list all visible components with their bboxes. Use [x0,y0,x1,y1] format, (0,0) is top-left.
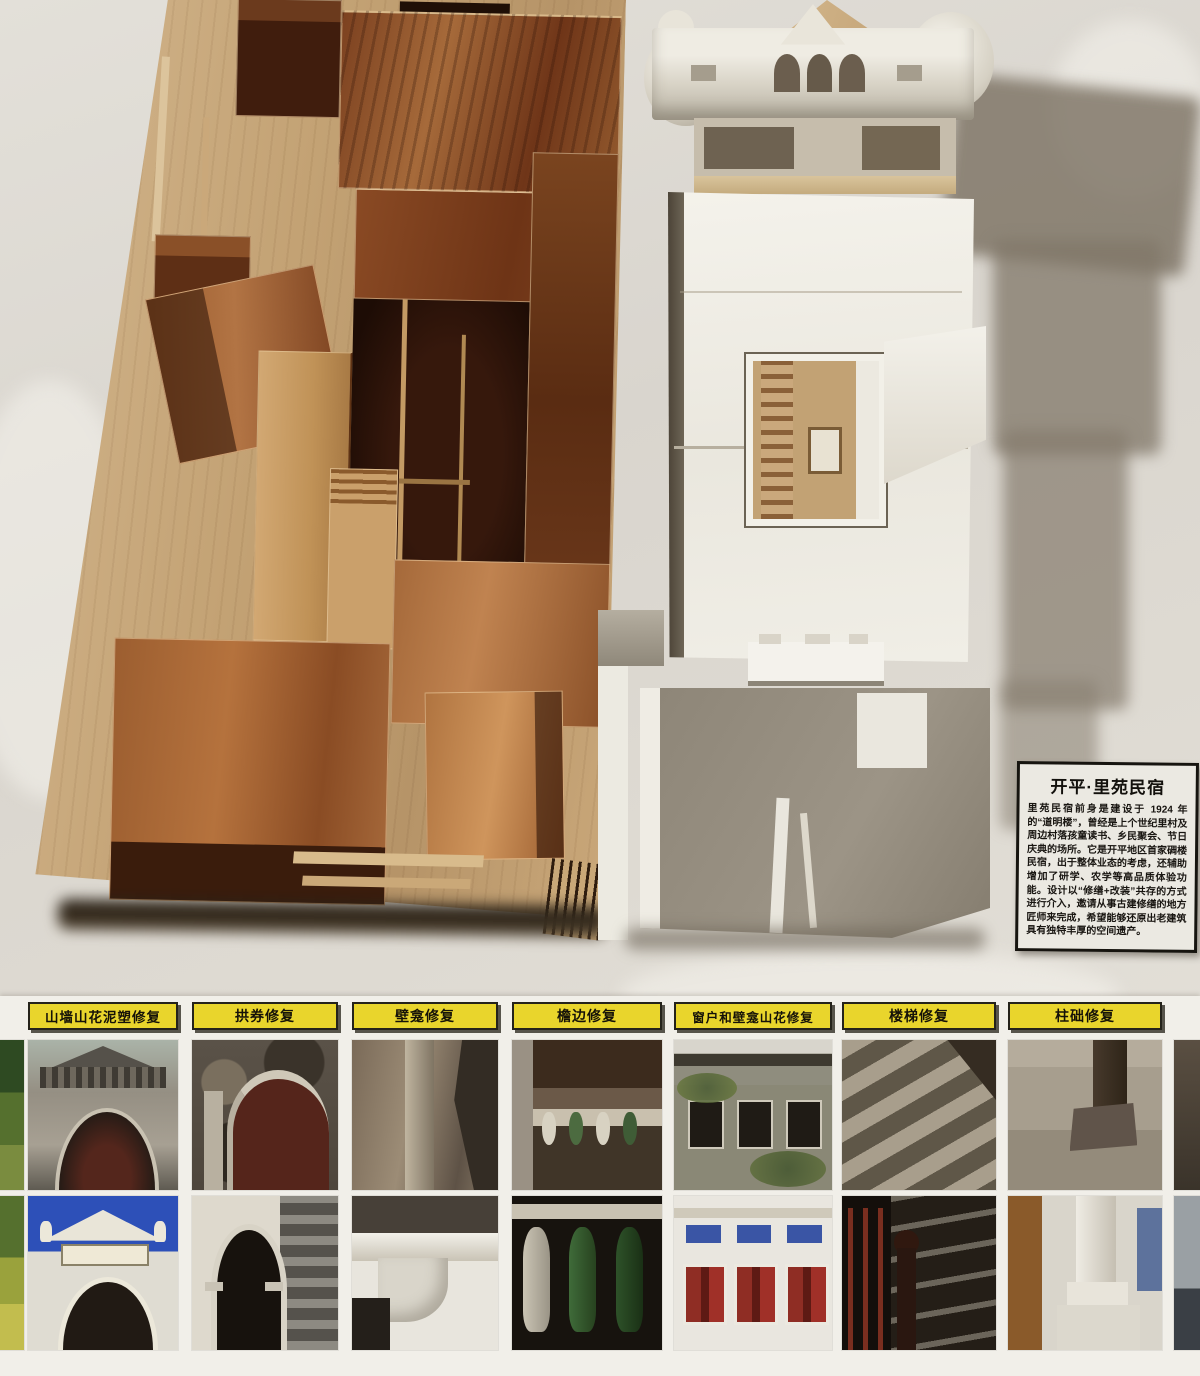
parapet-arch [807,54,833,93]
wood-box-topleft [235,0,341,118]
white-stick [800,813,817,928]
eaves-vase [569,1112,583,1145]
info-card: 开平·里苑民宿 里苑民宿前身是建设于 1924 年的“道明楼”，曾经是上个世纪里… [1015,761,1199,953]
stairs-dark-corner [927,1040,996,1100]
courtyard-ladder [761,361,794,519]
photo-cropped-right [1174,1040,1200,1190]
white-square [857,693,927,768]
column-base-step2 [1057,1305,1140,1350]
baluster-rail [512,1204,662,1219]
photo-plinth-after [1008,1196,1162,1350]
category-label-plinth: 柱础修复 [1008,1002,1162,1030]
white-tower-model [598,0,1000,954]
eaves-ledge [512,1109,662,1126]
photo-cropped-right [1174,1196,1200,1350]
photo-niche-after [352,1196,498,1350]
info-card-title: 开平·里苑民宿 [1028,772,1188,799]
gateway-pediment [43,1210,163,1241]
blue-panel [786,1224,823,1244]
category-label-niche: 壁龛修复 [352,1002,498,1030]
vegetation [750,1151,826,1187]
gateway-finial [40,1221,52,1243]
molding-band [352,1233,498,1261]
vegetation [677,1073,737,1103]
window-dark [737,1100,773,1149]
wood-fins-bottom [289,851,484,909]
eaves-vase [542,1112,556,1145]
arch-ring [227,1070,329,1190]
photo-niche-before [352,1040,498,1190]
tower-left-leg [598,640,628,940]
white-frame-vertical [640,688,660,938]
stair-newel-post [897,1248,915,1350]
eaves-vase [596,1112,610,1145]
baluster [523,1227,550,1332]
wood-steps-lines [330,469,397,504]
tower-terrace-recess [694,118,956,194]
tower-courtyard-opening [746,354,886,526]
photo-arch-before [192,1040,338,1190]
category-label-arch: 拱券修复 [192,1002,338,1030]
dark-corner [352,1298,390,1350]
brick-wall [280,1196,338,1350]
parapet-arch [839,54,865,93]
white-stick [769,798,789,933]
photo-windows-after [674,1196,832,1350]
info-card-body: 里苑民宿前身是建设于 1924 年的“道明楼”，曾经是上个世纪里村及周边村落孩童… [1026,802,1187,940]
arch-column [204,1091,223,1190]
wall-shadow [1003,430,1128,710]
arch-capital [265,1282,283,1291]
wall-shadow [993,240,1161,455]
eaves-column [512,1040,533,1190]
roofline [674,1054,832,1066]
column-base-step1 [1067,1282,1129,1305]
body-crease [680,291,962,293]
category-label-stairs: 楼梯修复 [842,1002,996,1030]
cornice [674,1208,832,1217]
ledge-block [759,634,781,644]
photo-windows-before [674,1040,832,1190]
tower-left-bracket [598,610,664,666]
tower-shadow-zone [640,688,990,938]
niche-column [405,1040,434,1190]
category-label-gable: 山墙山花泥塑修复 [28,1002,178,1030]
photo-plinth-before [1008,1040,1162,1190]
baluster [616,1227,643,1332]
photo-stairs-after [842,1196,996,1350]
eaves-vase [623,1112,637,1145]
wood-inner-ledge [399,478,469,484]
photo-gable-before [28,1040,178,1190]
wood-box-dark-face [534,692,564,858]
niche-dark-silhouette [454,1040,498,1190]
gateway-arch [55,1108,159,1190]
gateway-arch [58,1277,158,1350]
stair-spindles [848,1208,891,1350]
ledge-block [805,634,829,644]
white-column [1076,1196,1116,1288]
tower-parapet [652,28,974,120]
gateway-plaque [61,1244,149,1266]
gateway-band [40,1067,166,1088]
red-shutter-window [734,1264,778,1325]
photo-arch-after [192,1196,338,1350]
photo-eaves-before [512,1040,662,1190]
wood-box-bump [425,691,565,861]
wood-steps-mid [326,468,398,649]
arch-capital [205,1282,223,1291]
plinth-base-block [1070,1103,1138,1151]
terrace-slot [862,126,941,170]
courtyard-picture-frame [808,427,842,474]
blue-panel [736,1224,773,1244]
wood-fin [293,851,484,867]
red-shutter-window [785,1264,829,1325]
parapet-arch [774,54,800,93]
red-shutter-window [683,1264,727,1325]
tower-ledge [748,642,884,686]
exhibition-wall-photo: 开平·里苑民宿 里苑民宿前身是建设于 1924 年的“道明楼”，曾经是上个世纪里… [0,0,1200,1376]
photo-gable-after [28,1196,178,1350]
white-model-shadow [625,928,985,950]
blue-panel [685,1224,722,1244]
wood-fin [302,876,470,889]
photo-cropped-left [0,1196,24,1350]
terrace-slot [704,127,793,169]
courtyard-white-wall [856,361,879,519]
photo-cropped-left [0,1040,24,1190]
blue-tile-patch [1137,1208,1162,1291]
category-label-eaves: 檐边修复 [512,1002,662,1030]
body-left-edge [668,192,684,662]
window-dark [786,1100,822,1149]
baluster [569,1227,596,1332]
gateway-finial [154,1221,166,1243]
photo-eaves-after [512,1196,662,1350]
wooden-massing-model [28,0,626,964]
tower-right-wing [884,326,986,484]
ledge-block [849,634,868,644]
terrace-floor [694,176,956,194]
category-label-windows: 窗户和壁龛山花修复 [674,1002,832,1030]
parapet-notch [691,65,717,82]
window-dark [688,1100,724,1149]
parapet-notch [897,65,923,82]
photo-stairs-before [842,1040,996,1190]
